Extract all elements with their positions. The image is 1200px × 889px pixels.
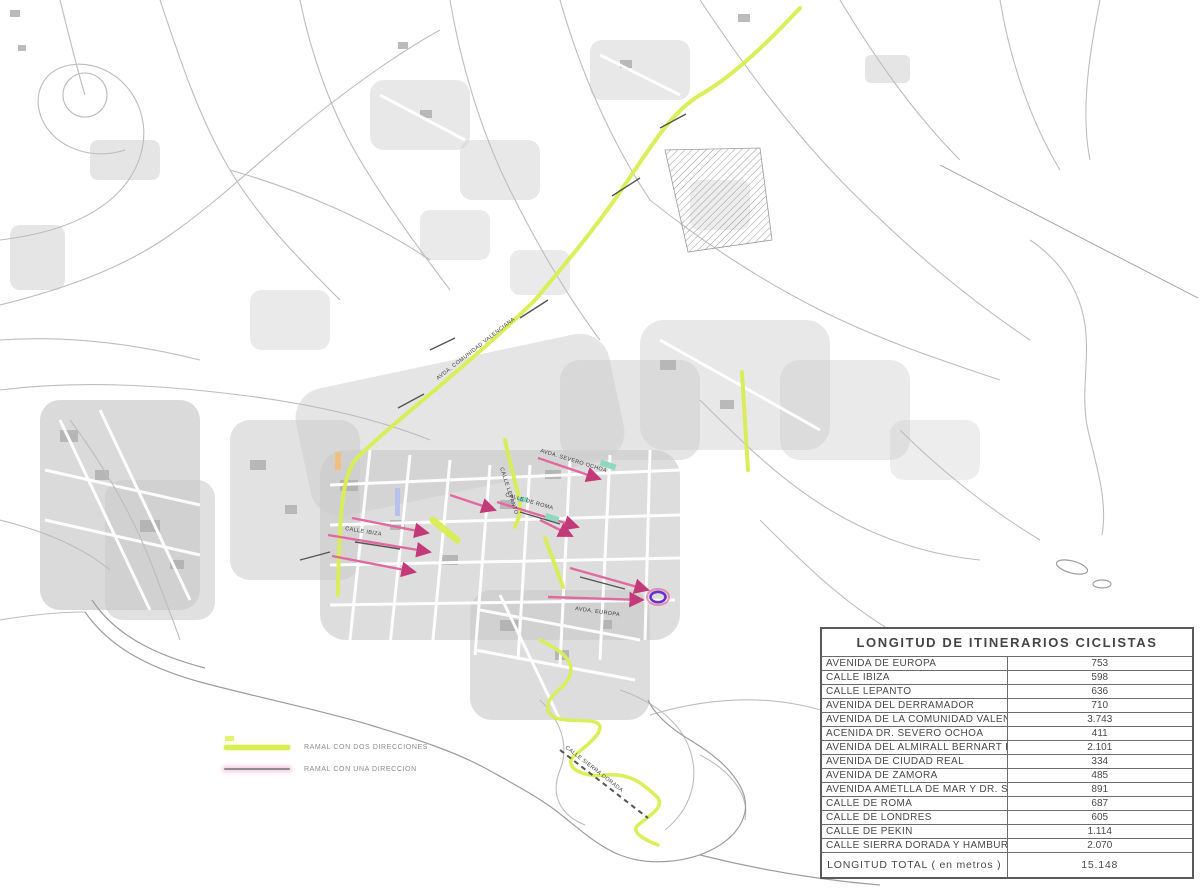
table-row: CALLE IBIZA598: [821, 671, 1193, 685]
street-length: 605: [1007, 811, 1193, 825]
street-name: AVENIDA DE ZAMORA: [821, 769, 1007, 783]
street-name: ACENIDA DR. SEVERO OCHOA: [821, 727, 1007, 741]
table-row: CALLE SIERRA DORADA Y HAMBURGO2.070: [821, 839, 1193, 853]
legend-yellow-chip: [225, 736, 234, 741]
hatched-area: [665, 148, 772, 252]
two-way-line-swatch: [224, 745, 290, 750]
street-name: AVENIDA DEL ALMIRALL BERNART DE SARRIA: [821, 741, 1007, 755]
table-title: LONGITUD DE ITINERARIOS CICLISTAS: [821, 628, 1193, 657]
legend-item-two-way: RAMAL CON DOS DIRECCIONES: [224, 736, 484, 758]
table-header-row: LONGITUD DE ITINERARIOS CICLISTAS: [821, 628, 1193, 657]
table-row: AVENIDA DEL DERRAMADOR710: [821, 699, 1193, 713]
table-row: CALLE DE PEKIN1.114: [821, 825, 1193, 839]
street-length: 334: [1007, 755, 1193, 769]
table-row: AVENIDA DE ZAMORA485: [821, 769, 1193, 783]
legend-label: RAMAL CON UNA DIRECCION: [304, 766, 417, 773]
table-row: AVENIDA DEL ALMIRALL BERNART DE SARRIA2.…: [821, 741, 1193, 755]
table-row: CALLE DE LONDRES605: [821, 811, 1193, 825]
street-name: AVENIDA DEL DERRAMADOR: [821, 699, 1007, 713]
street-length: 687: [1007, 797, 1193, 811]
street-length: 2.070: [1007, 839, 1193, 853]
street-name: CALLE SIERRA DORADA Y HAMBURGO: [821, 839, 1007, 853]
street-length: 2.101: [1007, 741, 1193, 755]
street-name: AVENIDA DE CIUDAD REAL: [821, 755, 1007, 769]
blue-tick: [395, 488, 400, 516]
street-name: CALLE LEPANTO: [821, 685, 1007, 699]
street-name: CALLE DE PEKIN: [821, 825, 1007, 839]
total-label: LONGITUD TOTAL ( en metros ): [821, 853, 1007, 879]
street-length: 485: [1007, 769, 1193, 783]
one-way-line-swatch: [224, 768, 290, 770]
street-length: 636: [1007, 685, 1193, 699]
map-legend: RAMAL CON DOS DIRECCIONES RAMAL CON UNA …: [224, 736, 484, 780]
table-row: ACENIDA DR. SEVERO OCHOA411: [821, 727, 1193, 741]
total-value: 15.148: [1007, 853, 1193, 879]
table-row: AVENIDA AMETLLA DE MAR Y DR. SEVERO OCHO…: [821, 783, 1193, 797]
street-name: AVENIDA AMETLLA DE MAR Y DR. SEVERO OCHO…: [821, 783, 1007, 797]
street-name: AVENIDA DE LA COMUNIDAD VALENCIANA: [821, 713, 1007, 727]
street-length: 891: [1007, 783, 1193, 797]
street-length: 753: [1007, 657, 1193, 671]
legend-label: RAMAL CON DOS DIRECCIONES: [304, 744, 428, 751]
street-length: 3.743: [1007, 713, 1193, 727]
street-name: CALLE DE ROMA: [821, 797, 1007, 811]
cycling-itineraries-map-document: AVDA. COMUNIDAD VALENCIANA CALLE LEPANTO…: [0, 0, 1200, 889]
street-length: 411: [1007, 727, 1193, 741]
street-length: 598: [1007, 671, 1193, 685]
street-name: CALLE IBIZA: [821, 671, 1007, 685]
street-name: CALLE DE LONDRES: [821, 811, 1007, 825]
itinerary-lengths-table: LONGITUD DE ITINERARIOS CICLISTAS AVENID…: [820, 627, 1194, 879]
orange-tick: [335, 452, 341, 470]
table-row: AVENIDA DE CIUDAD REAL334: [821, 755, 1193, 769]
urban-fabric: [10, 40, 980, 720]
legend-item-one-way: RAMAL CON UNA DIRECCION: [224, 758, 484, 780]
street-length: 710: [1007, 699, 1193, 713]
street-name: AVENIDA DE EUROPA: [821, 657, 1007, 671]
table-row: CALLE LEPANTO636: [821, 685, 1193, 699]
table-total-row: LONGITUD TOTAL ( en metros ) 15.148: [821, 853, 1193, 879]
table-row: CALLE DE ROMA687: [821, 797, 1193, 811]
street-length: 1.114: [1007, 825, 1193, 839]
table-row: AVENIDA DE LA COMUNIDAD VALENCIANA3.743: [821, 713, 1193, 727]
table-row: AVENIDA DE EUROPA753: [821, 657, 1193, 671]
